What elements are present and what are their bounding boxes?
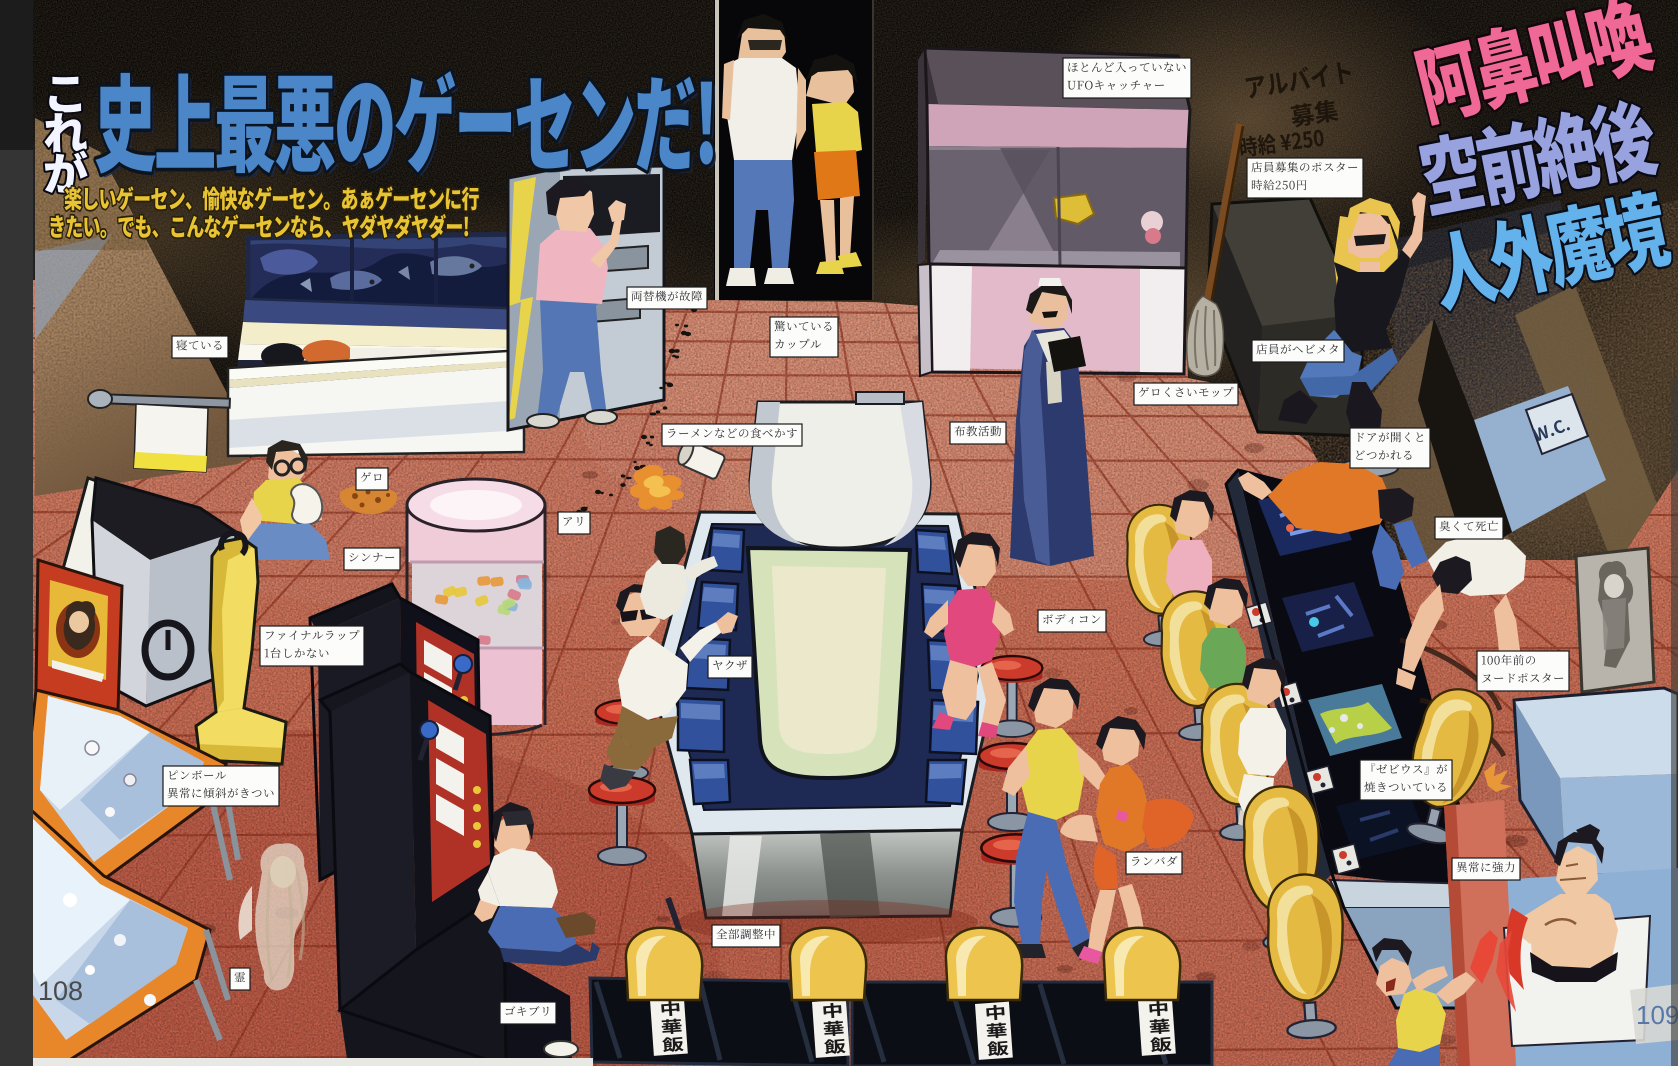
svg-text:108: 108 (38, 976, 83, 1006)
